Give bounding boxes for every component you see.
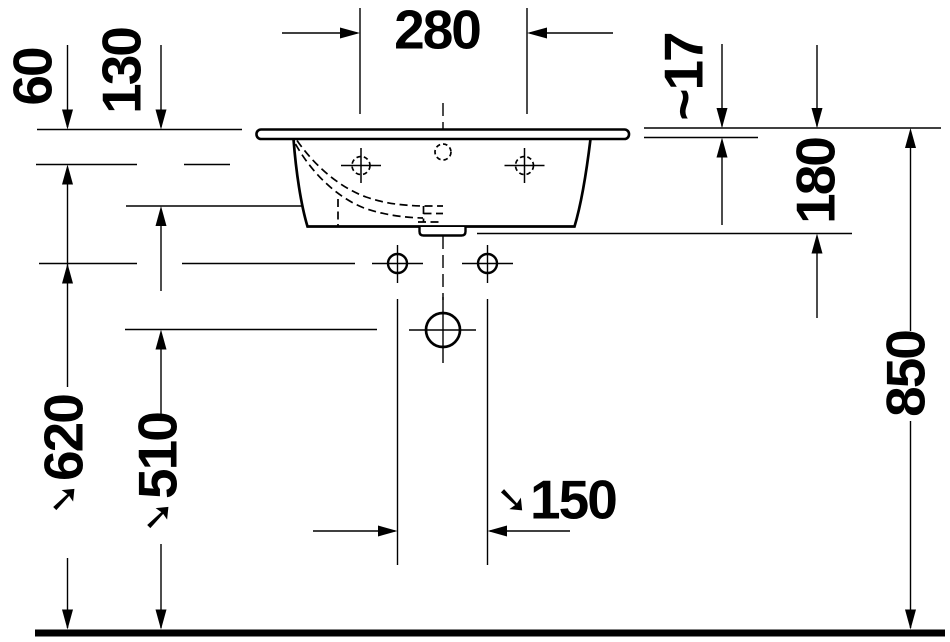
dim-label-280: 280 bbox=[394, 3, 480, 58]
dim-label-150: ➘150 bbox=[496, 473, 616, 528]
floor-line bbox=[35, 630, 945, 637]
washbasin-body bbox=[257, 130, 630, 236]
leader-arrow-icon: ➘ bbox=[136, 501, 180, 533]
dimension-lines bbox=[62, 28, 916, 630]
leader-arrow-icon: ➘ bbox=[42, 483, 86, 515]
dim-label-60: 60 bbox=[6, 48, 61, 105]
rim-slab bbox=[257, 130, 630, 140]
dim-label-850: 850 bbox=[879, 331, 934, 417]
drain-outlet bbox=[420, 227, 466, 236]
dim-label-510: ➘510 bbox=[131, 413, 186, 533]
leader-arrow-icon: ➘ bbox=[496, 478, 528, 522]
drain-circle bbox=[409, 297, 476, 363]
dim-label-17: ~17 bbox=[657, 33, 712, 120]
washbasin-technical-drawing: 280 60 130 ~17 180 850 ➘620 ➘510 ➘150 bbox=[0, 0, 950, 642]
dim-label-130: 130 bbox=[95, 28, 150, 114]
dim-label-180: 180 bbox=[789, 138, 844, 224]
dim-label-620: ➘620 bbox=[37, 395, 92, 515]
